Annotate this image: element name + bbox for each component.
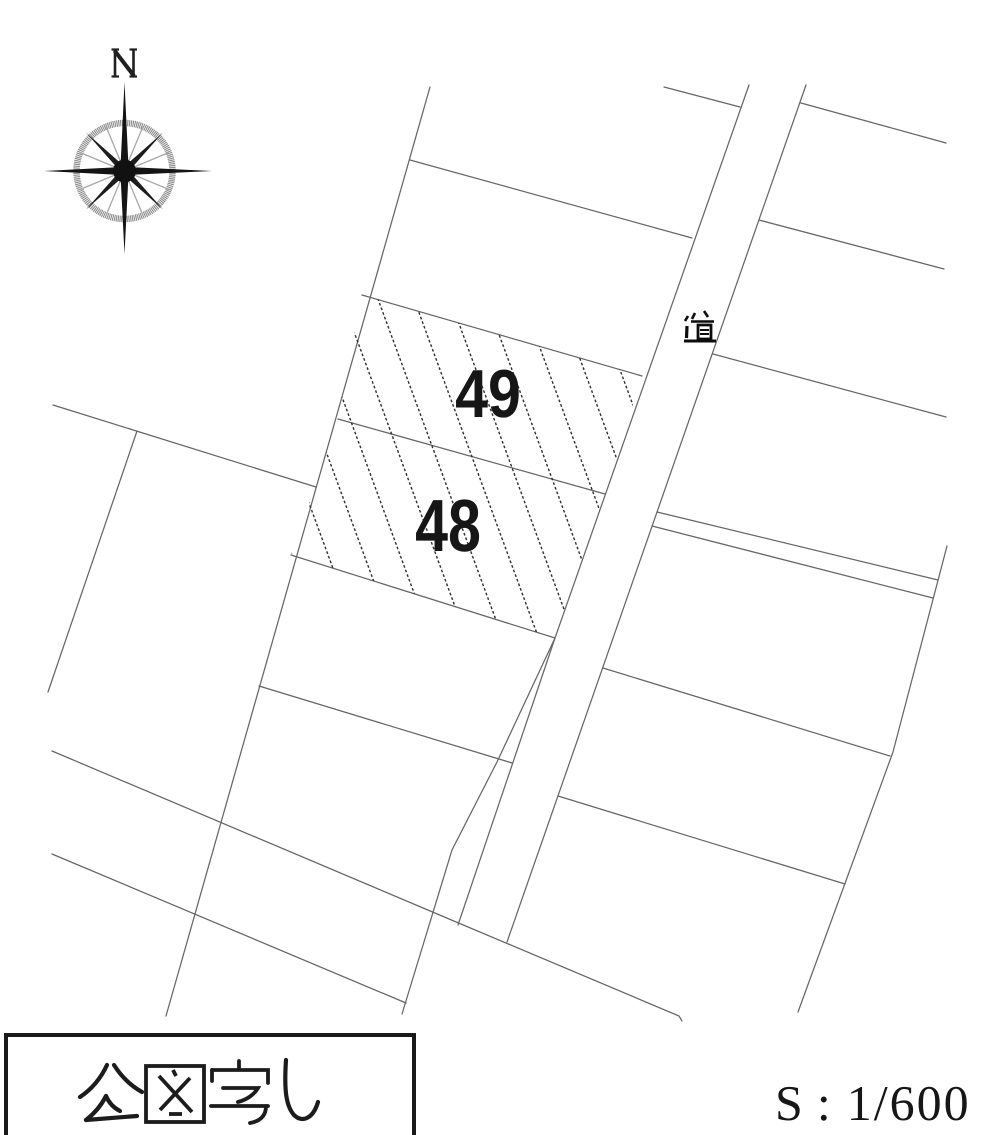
svg-text:S:1/600: S:1/600 bbox=[775, 1075, 971, 1131]
svg-text:48: 48 bbox=[415, 484, 481, 567]
svg-text:49: 49 bbox=[455, 356, 521, 432]
